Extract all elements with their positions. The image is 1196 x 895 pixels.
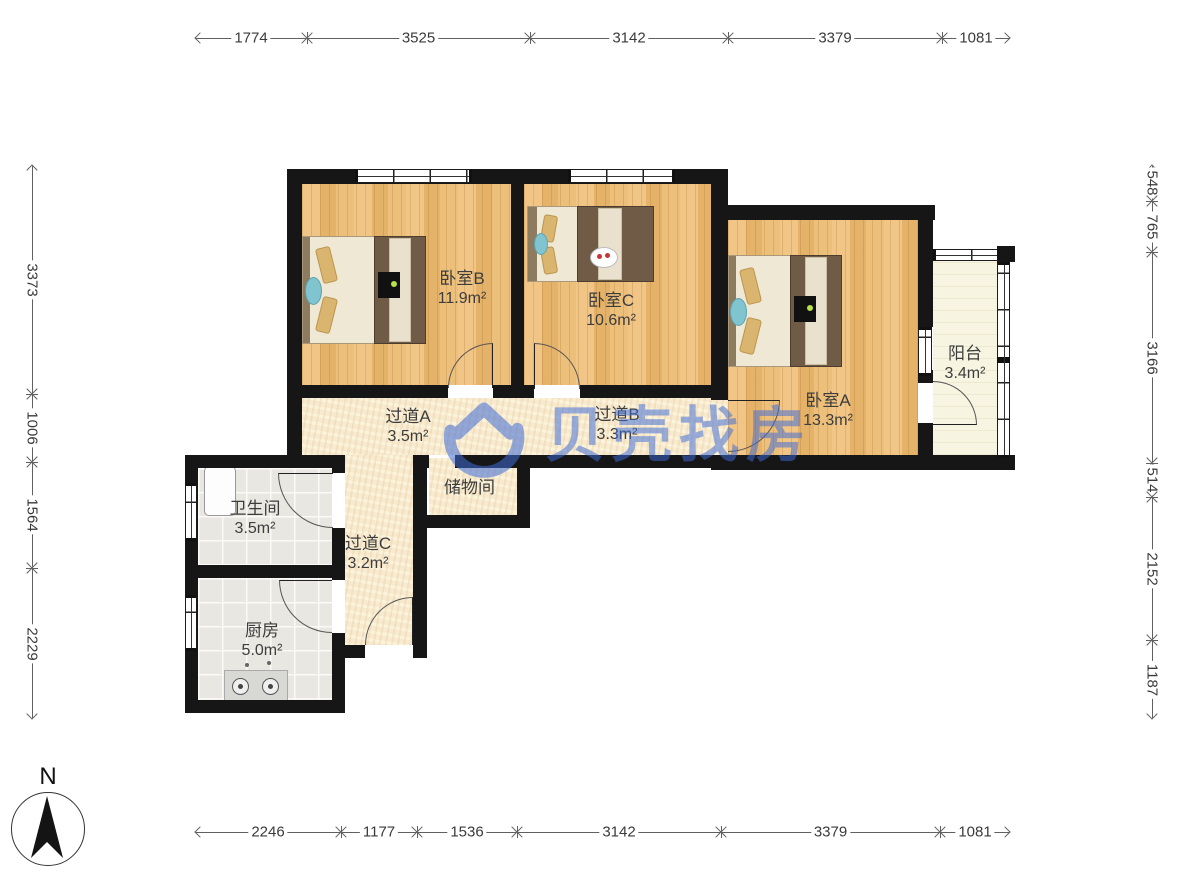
dim-segment: 1006 (22, 394, 42, 462)
room-label-balcony: 阳台 3.4m² (925, 343, 1005, 384)
room-label-storage: 储物间 (402, 477, 537, 498)
dimension-right: 548 765 3166 514 2152 1187 (1142, 165, 1162, 719)
dimension-top: 1774 3525 3142 3379 1081 (195, 28, 1010, 48)
dim-segment: 1177 (341, 822, 417, 842)
dim-segment: 3379 (728, 28, 942, 48)
room-label-bedroom-c: 卧室C 10.6m² (541, 290, 681, 331)
decor-dot (597, 254, 602, 259)
room-label-bedroom-a: 卧室A 13.3m² (758, 390, 898, 431)
wall (580, 385, 728, 398)
dim-segment: 548 (1142, 165, 1162, 201)
dimension-left: 3373 1006 1564 2229 (22, 165, 42, 719)
room-name: 卧室B (392, 268, 532, 289)
wall (332, 633, 345, 713)
compass: N (6, 764, 90, 866)
stove-knob (267, 661, 271, 665)
dim-segment: 3373 (22, 165, 42, 394)
stove-knob (245, 663, 249, 667)
bed-cushion (534, 233, 548, 255)
wall (711, 455, 1015, 470)
room-label-hallway-b: 过道B 3.3m² (547, 404, 687, 445)
decor-tray (590, 247, 618, 268)
dimension-bottom: 2246 1177 1536 3142 3379 1081 (195, 822, 1010, 842)
decor-dot (605, 253, 610, 258)
wall (413, 645, 427, 658)
bed (302, 236, 376, 344)
compass-needle-icon (11, 792, 83, 864)
balcony-window (933, 249, 1000, 261)
kitchen-stove (224, 670, 288, 702)
room-name: 过道B (547, 404, 687, 425)
bed-cushion (730, 298, 747, 326)
wall (332, 455, 345, 473)
room-area: 11.9m² (392, 289, 532, 309)
room-label-bedroom-b: 卧室B 11.9m² (392, 268, 532, 309)
tv-indicator (807, 305, 813, 311)
wall (413, 515, 530, 528)
bed (527, 206, 653, 282)
room-area: 3.4m² (925, 364, 1005, 384)
dim-segment: 1081 (940, 822, 1010, 842)
wall (185, 700, 345, 713)
room-area: 3.2m² (298, 554, 438, 574)
room-name: 储物间 (402, 477, 537, 498)
room-name: 阳台 (925, 343, 1005, 364)
stove-burner (262, 678, 279, 695)
room-area: 3.5m² (338, 427, 478, 447)
room-name: 卧室A (758, 390, 898, 411)
dim-segment: 1774 (195, 28, 307, 48)
bed-cushion (305, 277, 322, 305)
room-name: 卧室C (541, 290, 681, 311)
dim-segment: 2229 (22, 568, 42, 719)
dim-segment: 2152 (1142, 497, 1162, 640)
dim-segment: 3166 (1142, 252, 1162, 463)
bed-blanket (577, 206, 654, 282)
wall (493, 385, 534, 398)
room-label-hallway-c: 过道C 3.2m² (298, 533, 438, 574)
room-label-hallway-a: 过道A 3.5m² (338, 406, 478, 447)
bed-pillow (315, 246, 338, 285)
bed (728, 255, 792, 367)
room-label-kitchen: 厨房 5.0m² (192, 620, 332, 661)
room-area: 3.3m² (547, 425, 687, 445)
dim-segment: 3525 (307, 28, 530, 48)
dim-segment: 1564 (22, 462, 42, 568)
dim-segment: 1081 (942, 28, 1010, 48)
wall (287, 385, 448, 398)
dim-segment: 3142 (530, 28, 728, 48)
wardrobe (790, 255, 842, 367)
wall (455, 455, 728, 468)
compass-north-label: N (6, 764, 90, 790)
dim-segment: 1536 (417, 822, 517, 842)
wall (185, 455, 345, 468)
dim-segment: 3379 (721, 822, 940, 842)
room-name: 过道C (298, 533, 438, 554)
tv-panel (794, 296, 816, 322)
room-name: 过道A (338, 406, 478, 427)
room-name: 厨房 (192, 620, 332, 641)
wall (918, 423, 933, 457)
dim-segment: 3142 (517, 822, 721, 842)
dim-segment: 1187 (1142, 640, 1162, 719)
window (355, 169, 472, 183)
floor-plan: 卧室B 11.9m² 卧室C 10.6m² 卧室A 13.3m² 阳台 3.4m… (0, 0, 1196, 895)
wall (287, 169, 302, 468)
wall (918, 205, 933, 327)
compass-ring (11, 792, 85, 866)
wall (345, 645, 365, 658)
window (568, 169, 675, 183)
room-area: 13.3m² (758, 411, 898, 431)
wardrobe-door (598, 208, 622, 280)
dim-segment: 2246 (195, 822, 341, 842)
dim-segment: 514 (1142, 463, 1162, 497)
dim-segment: 765 (1142, 201, 1162, 252)
room-area: 5.0m² (192, 641, 332, 661)
room-name: 卫生间 (185, 498, 325, 519)
room-area: 10.6m² (541, 311, 681, 331)
wall (711, 169, 728, 400)
wall (711, 205, 935, 220)
stove-burner (232, 678, 249, 695)
